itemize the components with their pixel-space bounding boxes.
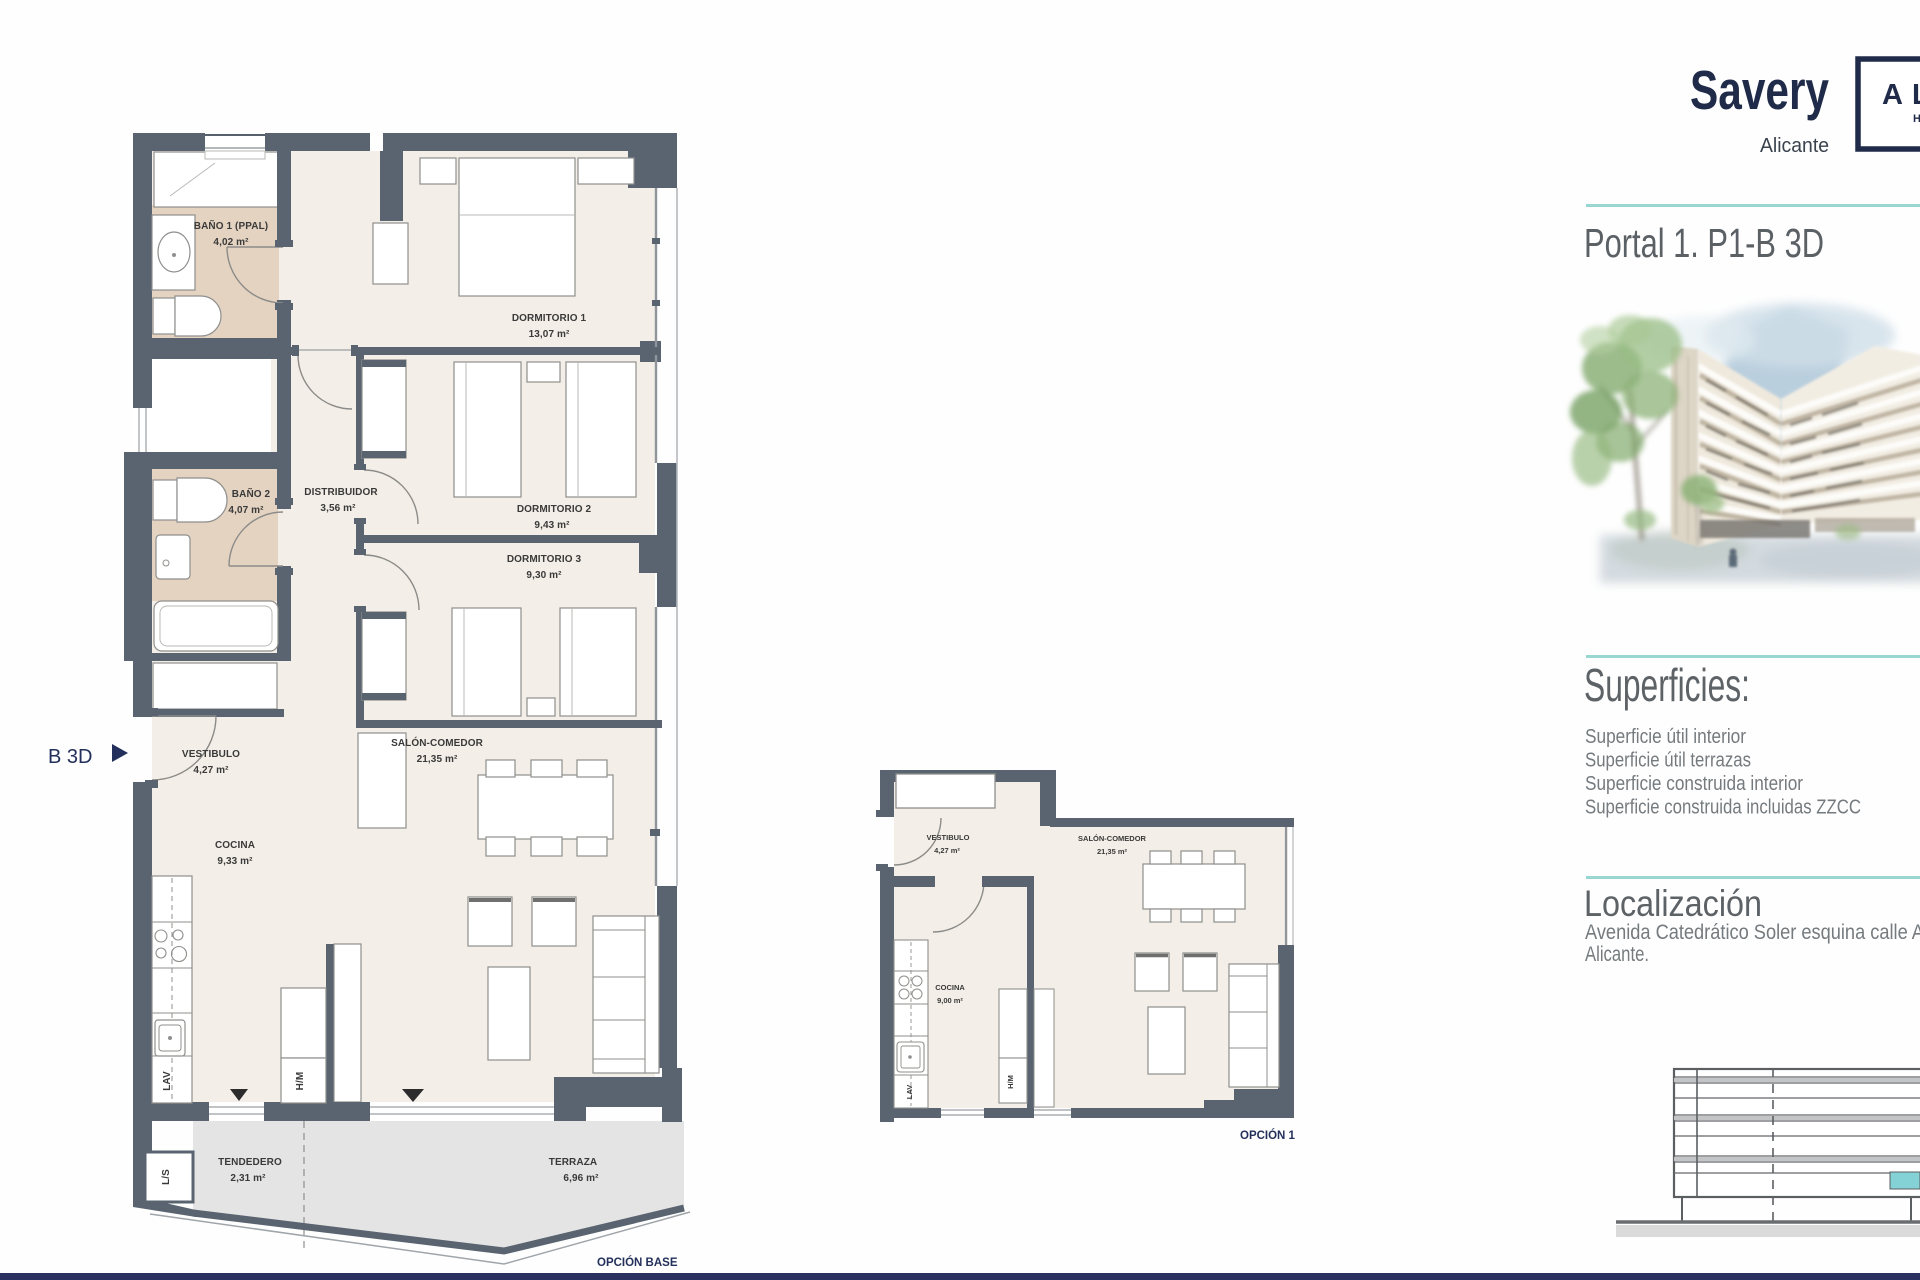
svg-text:VESTIBULO: VESTIBULO xyxy=(927,833,970,842)
svg-text:B 3D: B 3D xyxy=(48,746,92,768)
svg-text:AL: AL xyxy=(1882,79,1920,111)
svg-text:21,35 m²: 21,35 m² xyxy=(1097,847,1128,856)
svg-text:TENDEDERO: TENDEDERO xyxy=(218,1157,282,1168)
svg-text:Alicante.: Alicante. xyxy=(1585,943,1649,966)
svg-text:4,02 m²: 4,02 m² xyxy=(213,237,249,248)
svg-text:Superficie construida incluida: Superficie construida incluidas ZZCC xyxy=(1585,797,1861,819)
svg-text:H: H xyxy=(1913,113,1920,125)
svg-text:4,07 m²: 4,07 m² xyxy=(228,505,264,516)
svg-text:BAÑO 1 (PPAL): BAÑO 1 (PPAL) xyxy=(194,219,268,232)
svg-text:2,31 m²: 2,31 m² xyxy=(230,1173,266,1184)
svg-text:9,00 m²: 9,00 m² xyxy=(937,996,963,1005)
svg-text:H/M: H/M xyxy=(295,1072,306,1091)
svg-text:Alicante: Alicante xyxy=(1760,135,1829,157)
svg-text:H/M: H/M xyxy=(1006,1075,1015,1089)
svg-text:9,30 m²: 9,30 m² xyxy=(526,570,562,581)
svg-text:L/S: L/S xyxy=(161,1169,172,1185)
svg-text:21,35 m²: 21,35 m² xyxy=(417,754,458,765)
svg-text:BAÑO 2: BAÑO 2 xyxy=(232,487,271,500)
svg-text:COCINA: COCINA xyxy=(215,840,255,851)
svg-text:Superficies:: Superficies: xyxy=(1584,659,1750,711)
svg-text:4,27 m²: 4,27 m² xyxy=(193,765,229,776)
svg-text:DISTRIBUIDOR: DISTRIBUIDOR xyxy=(304,487,378,498)
svg-text:VESTIBULO: VESTIBULO xyxy=(182,749,240,760)
svg-text:OPCIÓN BASE: OPCIÓN BASE xyxy=(597,1256,678,1269)
svg-text:13,07 m²: 13,07 m² xyxy=(529,329,570,340)
svg-text:SALÓN-COMEDOR: SALÓN-COMEDOR xyxy=(391,736,484,749)
svg-text:Superficie útil interior: Superficie útil interior xyxy=(1585,726,1746,748)
svg-text:6,96 m²: 6,96 m² xyxy=(563,1173,599,1184)
svg-text:COCINA: COCINA xyxy=(935,983,965,992)
svg-text:DORMITORIO 2: DORMITORIO 2 xyxy=(517,504,592,515)
svg-text:Superficie útil terrazas: Superficie útil terrazas xyxy=(1585,750,1751,772)
svg-text:3,56 m²: 3,56 m² xyxy=(320,503,356,514)
svg-text:Portal 1. P1-B 3D: Portal 1. P1-B 3D xyxy=(1584,220,1824,266)
svg-text:SALÓN-COMEDOR: SALÓN-COMEDOR xyxy=(1078,834,1146,843)
svg-text:Savery: Savery xyxy=(1690,59,1829,121)
svg-text:LAV: LAV xyxy=(162,1071,173,1091)
svg-text:DORMITORIO 1: DORMITORIO 1 xyxy=(512,313,587,324)
svg-text:4,27 m²: 4,27 m² xyxy=(934,846,960,855)
svg-text:TERRAZA: TERRAZA xyxy=(549,1157,597,1168)
svg-text:9,43 m²: 9,43 m² xyxy=(534,520,570,531)
svg-text:Superficie construida interior: Superficie construida interior xyxy=(1585,773,1803,795)
svg-text:OPCIÓN 1: OPCIÓN 1 xyxy=(1240,1129,1296,1142)
svg-text:LAV: LAV xyxy=(905,1085,914,1099)
svg-text:Avenida Catedrático Soler esqu: Avenida Catedrático Soler esquina calle … xyxy=(1585,921,1920,944)
svg-text:9,33 m²: 9,33 m² xyxy=(217,856,253,867)
svg-text:DORMITORIO 3: DORMITORIO 3 xyxy=(507,554,582,565)
svg-text:Localización: Localización xyxy=(1584,883,1762,924)
